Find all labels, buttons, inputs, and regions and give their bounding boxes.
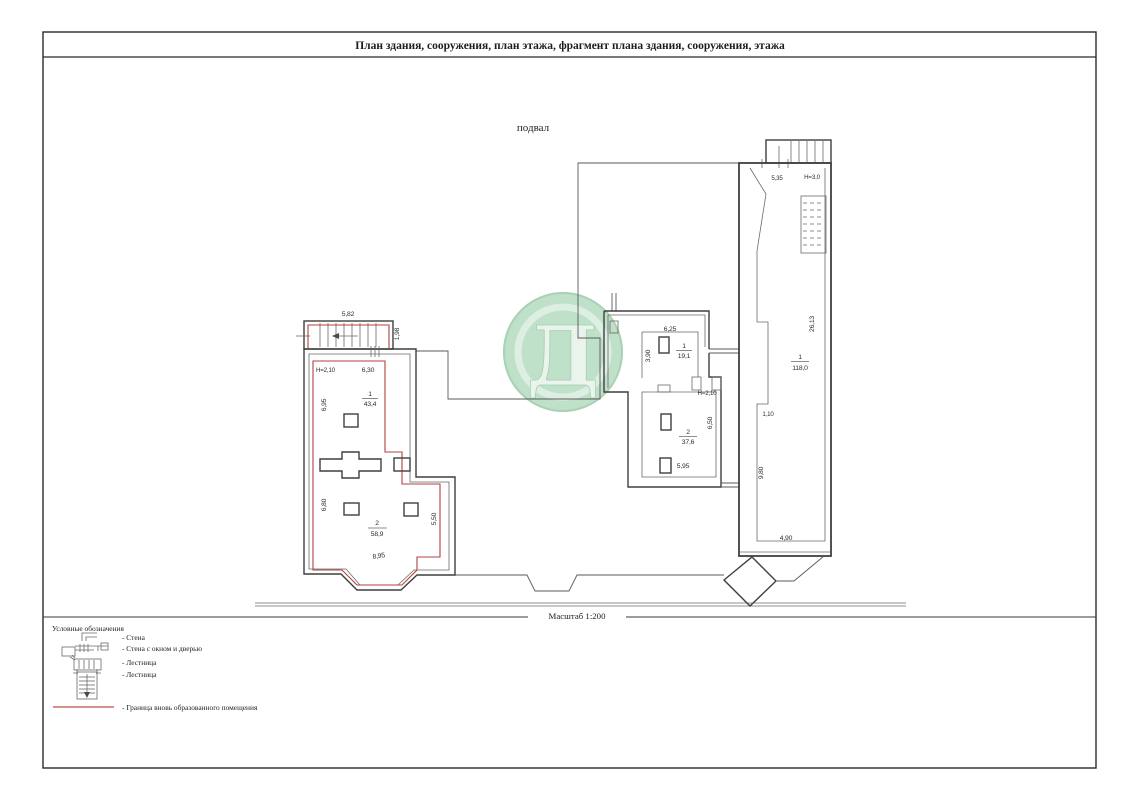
left-plan: 5,82 1,98 H=2,10 6,30 6,95 1 43,4 6,80 2… xyxy=(296,311,455,590)
svg-text:1: 1 xyxy=(798,354,802,361)
dim-label: 3,90 xyxy=(645,349,652,362)
height-label: H=3,0 xyxy=(804,174,820,181)
height-label: H=2,10 xyxy=(698,390,718,397)
document-sheet: Д План здания, сооружения, план этажа, ф… xyxy=(0,0,1131,800)
svg-text:58,9: 58,9 xyxy=(371,531,384,538)
column xyxy=(661,414,671,430)
room-label-2: 2 58,9 xyxy=(368,520,387,538)
svg-text:2: 2 xyxy=(375,520,379,527)
svg-text:118,0: 118,0 xyxy=(792,365,808,372)
dim-label: 6,25 xyxy=(664,326,677,333)
svg-text:19,1: 19,1 xyxy=(678,353,691,360)
svg-text:2: 2 xyxy=(686,429,690,436)
column xyxy=(404,503,418,516)
left-plan-inner-wall xyxy=(309,354,449,585)
room-label-1: 1 43,4 xyxy=(362,391,378,408)
column xyxy=(660,458,671,473)
room-label-2: 2 37,6 xyxy=(679,429,697,446)
wall-stub xyxy=(692,377,701,390)
dim-label: 8,95 xyxy=(372,552,386,561)
facade-chamfer xyxy=(776,556,824,581)
right-stairs-box xyxy=(766,140,831,163)
watermark-letter: Д xyxy=(527,309,600,405)
staircase-symbol-horizontal xyxy=(70,655,101,670)
legend-item-label: - Стена xyxy=(122,633,146,642)
floor-label: подвал xyxy=(517,122,550,134)
legend-item-label: - Лестница xyxy=(122,658,157,667)
scale-label-group: Масштаб 1:200 xyxy=(528,609,626,621)
middle-plan: 6,25 3,90 1 19,1 H=2,10 6,50 2 37,6 5,95 xyxy=(604,311,739,487)
column xyxy=(344,503,359,515)
cross-column xyxy=(320,452,381,478)
dim-label: 26,13 xyxy=(809,316,816,332)
right-plan-outer-wall xyxy=(739,163,831,556)
column xyxy=(344,414,358,427)
svg-text:1: 1 xyxy=(682,343,686,350)
dim-label: 9,80 xyxy=(758,466,765,479)
dim-label: 6,80 xyxy=(321,498,328,511)
facade-line xyxy=(455,575,724,591)
column xyxy=(659,337,669,353)
ground-line xyxy=(255,603,906,606)
dim-label: 5,35 xyxy=(771,175,783,182)
staircase-symbol-vertical xyxy=(73,669,101,699)
svg-text:37,6: 37,6 xyxy=(682,439,695,446)
legend-item-label: - Граница вновь образованного помещения xyxy=(122,703,258,712)
watermark-logo: Д xyxy=(503,292,623,412)
door-notch xyxy=(658,385,670,392)
wall-stub xyxy=(712,377,721,390)
dim-label: 5,50 xyxy=(431,512,438,525)
legend-item-label: - Лестница xyxy=(122,670,157,679)
legend: Условные обозначения - Стена - Стена с о… xyxy=(52,624,258,712)
window-ticks xyxy=(371,346,379,357)
ladder-symbol xyxy=(801,196,826,253)
dim-label: 6,50 xyxy=(707,416,714,429)
red-boundary-rooms xyxy=(313,361,440,585)
dim-label: 6,95 xyxy=(321,398,328,411)
wall-symbol xyxy=(82,633,97,641)
page-title: План здания, сооружения, план этажа, фра… xyxy=(355,40,785,52)
legend-title: Условные обозначения xyxy=(52,624,124,633)
dim-label: 1,98 xyxy=(394,327,401,340)
diamond-bay xyxy=(724,557,776,606)
room-label-1: 1 118,0 xyxy=(791,354,809,372)
dim-label: 6,30 xyxy=(362,367,375,374)
svg-text:1: 1 xyxy=(368,391,372,398)
right-plan: 5,35 H=3,0 26,13 1 118,0 1,10 9,80 4,90 xyxy=(724,140,831,606)
height-label: H=2,10 xyxy=(316,367,336,374)
legend-item-label: - Стена с окном и дверью xyxy=(122,644,203,653)
room-label-1: 1 19,1 xyxy=(676,343,692,360)
right-stairs-treads xyxy=(791,141,823,162)
wall-window-door-symbol xyxy=(62,643,108,656)
dim-label: 4,90 xyxy=(780,535,793,542)
dim-label: 5,95 xyxy=(677,463,690,470)
svg-text:43,4: 43,4 xyxy=(364,401,377,408)
dim-label: 1,10 xyxy=(762,411,774,418)
dim-label: 5,82 xyxy=(342,311,355,318)
scale-label: Масштаб 1:200 xyxy=(549,611,607,621)
left-stairs-treads xyxy=(320,323,376,347)
